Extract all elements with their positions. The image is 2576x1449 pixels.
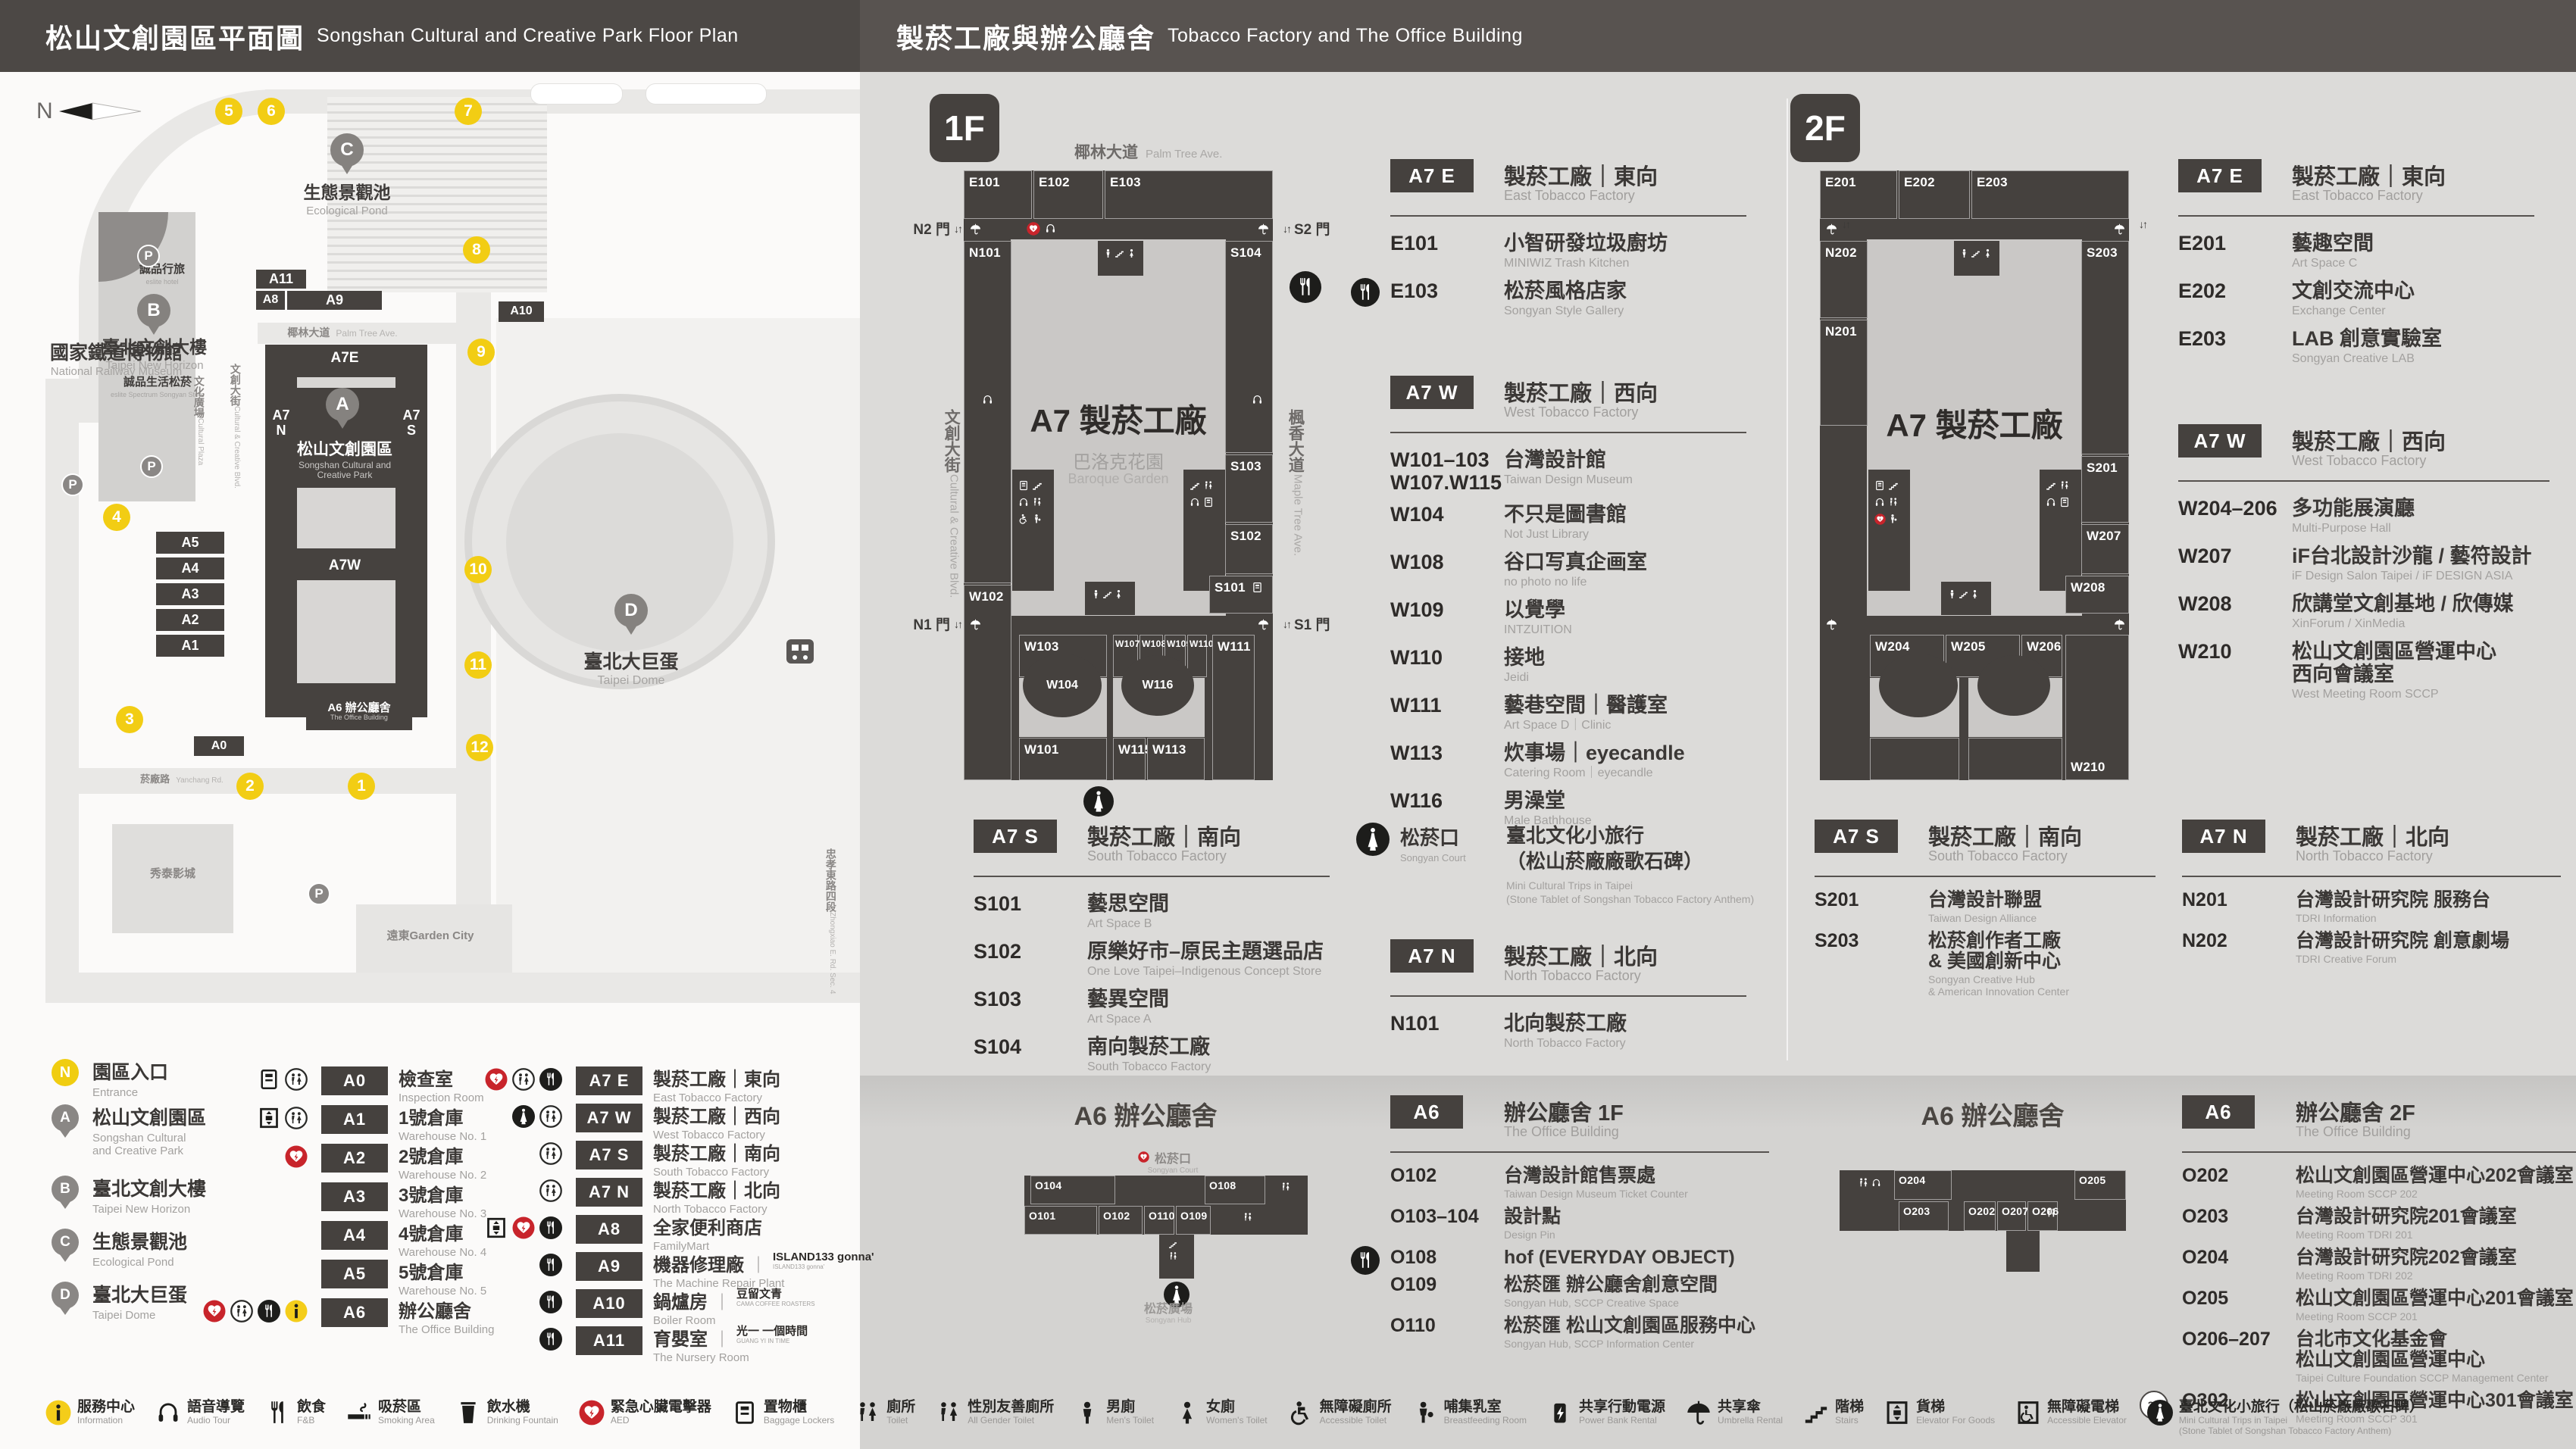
info-icon — [45, 1400, 71, 1426]
gelev-icon — [485, 1216, 508, 1239]
section-badge-A7E: A7 E — [1390, 159, 1474, 192]
facility-text: 置物櫃Baggage Lockers — [764, 1400, 834, 1426]
section-entries: S201台灣設計聯盟Taiwan Design AllianceS203松菸創作… — [1815, 883, 2156, 998]
facility-text: 服務中心Information — [77, 1400, 135, 1426]
gelev-icon — [1884, 1400, 1910, 1429]
facility-text: 廁所Toilet — [886, 1400, 915, 1426]
map-callout — [530, 83, 623, 105]
audio-icon — [1045, 223, 1056, 234]
room-name: 南向製菸工廠South Tobacco Factory — [1087, 1035, 1211, 1074]
umbrella-icon — [1686, 1400, 1712, 1429]
plan-oval-room — [1879, 654, 1958, 717]
floor-plan-poster: 松山文創園區平面圖 Songshan Cultural and Creative… — [0, 0, 2576, 1449]
mens-icon — [1091, 589, 1101, 599]
legend-point-text: 臺北大巨蛋Taipei Dome — [92, 1280, 187, 1322]
map-block-A1: A1 — [156, 635, 224, 657]
compass-north: N — [36, 98, 142, 124]
room-code: W210 — [2178, 640, 2292, 701]
bus-stop-icon — [786, 639, 814, 664]
plan-title-text: A7 製菸工廠 — [1886, 400, 2062, 446]
directory-entry-O110: O110松菸匯 松山文創園區服務中心Songyan Hub, SCCP Info… — [1390, 1316, 1769, 1350]
directory-entry-W204–206: W204–206多功能展演廳Multi-Purpose Hall — [2178, 497, 2549, 536]
plan-room-E202: E202 — [1899, 170, 1970, 219]
section-badge-A7W: A7 W — [2178, 424, 2262, 457]
facility-item-allgender: 性別友善廁所All Gender Toilet — [936, 1400, 1054, 1429]
plan-room-S203: S203 — [2081, 241, 2129, 454]
section-title-zh: 製菸工廠｜東向 — [1504, 159, 1658, 191]
a6-room-O108: O108 — [1205, 1176, 1265, 1204]
room-code: N202 — [2182, 931, 2296, 965]
right-header-en: Tobacco Factory and The Office Building — [1168, 25, 1523, 47]
map-gate-6: 6 — [258, 98, 285, 125]
legend-text-A8: 全家便利商店FamilyMart — [653, 1213, 762, 1253]
room-code: O102 — [1390, 1166, 1504, 1200]
aed-icon — [1027, 222, 1040, 236]
room-name: 台灣設計研究院 服務台TDRI Information — [2296, 890, 2490, 924]
map-gate-7: 7 — [455, 98, 482, 125]
plan-oval-room — [1977, 655, 2050, 716]
facility-item-wheelchair: 無障礙廁所Accessible Toilet — [1288, 1400, 1392, 1429]
section-entries: E101小智研發垃圾廚坊MINIWIZ Trash KitchenE103松菸風… — [1390, 223, 1746, 318]
facility-item-powerbank: 共享行動電源Power Bank Rental — [1547, 1400, 1665, 1429]
room-name: iF台北設計沙龍 / 藝符設計iF Design Salon Taipei / … — [2292, 545, 2532, 583]
gelev-icon — [258, 1107, 280, 1129]
directory-entry-W207: W207iF台北設計沙龍 / 藝符設計iF Design Salon Taipe… — [2178, 545, 2549, 583]
facility-item-aed: 緊急心臟電擊器AED — [579, 1400, 711, 1426]
room-name: 藝趣空間Art Space C — [2292, 232, 2374, 270]
directory-entry-N201: N201台灣設計研究院 服務台TDRI Information — [2182, 890, 2561, 924]
section-entries: E201藝趣空間Art Space CE202文創交流中心Exchange Ce… — [2178, 223, 2534, 366]
door-label-S1 門: ↓↑S1 門 — [1279, 614, 1352, 634]
songyan-court-icon — [1083, 786, 1114, 817]
legend-badge-A10: A10 — [576, 1289, 642, 1318]
plan-room-W208: W208 — [2065, 576, 2129, 614]
room-name: 多功能展演廳Multi-Purpose Hall — [2292, 497, 2415, 536]
map-label: 臺北大巨蛋Taipei Dome — [583, 651, 678, 688]
plan-room-N201: N201 — [1820, 320, 1868, 426]
breastfeeding-icon — [1032, 514, 1043, 524]
map-label: 生態景觀池Ecological Pond — [304, 183, 391, 217]
directory-entry-O108: O108hof (EVERYDAY OBJECT) — [1390, 1248, 1769, 1268]
plan-room-W113: W113 — [1147, 738, 1205, 780]
room-code: S104 — [974, 1035, 1087, 1074]
section-title-zh: 製菸工廠｜北向 — [2296, 820, 2449, 851]
section-entries: N101北向製菸工廠North Tobacco Factory — [1390, 1003, 1746, 1051]
a6-room-O203: O203 — [1899, 1201, 1949, 1231]
plan-title-text: 巴洛克花園 — [1073, 447, 1164, 473]
section-badge-A6: A6 — [2182, 1095, 2255, 1129]
room-code: S203 — [1815, 931, 1928, 998]
legend-text-A5: 5號倉庫Warehouse No. 5 — [399, 1257, 486, 1298]
room-code: O202 — [2182, 1166, 2296, 1200]
room-code: W110 — [1390, 646, 1504, 685]
directory-entry-O205: O205松山文創園區營運中心201會議室Meeting Room SCCP 20… — [2182, 1288, 2576, 1323]
dining-icon — [1351, 278, 1380, 307]
room-name: 文創交流中心Exchange Center — [2292, 279, 2415, 318]
facility-item-locker: 置物櫃Baggage Lockers — [732, 1400, 834, 1429]
umbrella-icon — [1258, 223, 1269, 235]
legend-badge-A1: A1 — [321, 1105, 388, 1134]
street-label: 椰林大道Palm Tree Ave. — [1074, 144, 1222, 162]
room-name: 台灣設計館Taiwan Design Museum — [1504, 448, 1633, 494]
section-title-zh: 製菸工廠｜西向 — [1504, 376, 1658, 408]
legend-badge-A6: A6 — [321, 1298, 388, 1327]
door-label-N2 門: N2 門↓↑ — [893, 218, 965, 239]
plan-room-E102: E102 — [1033, 170, 1103, 219]
directory-entry-S101: S101藝思空間Art Space B — [974, 892, 1330, 931]
room-name: 北向製菸工廠North Tobacco Factory — [1504, 1012, 1627, 1051]
legend-text-A4: 4號倉庫Warehouse No. 4 — [399, 1219, 486, 1259]
directory-entry-S104: S104南向製菸工廠South Tobacco Factory — [974, 1035, 1330, 1074]
map-label: A7E — [331, 350, 359, 366]
room-name: 藝巷空間｜醫護室Art Space D｜Clinic — [1504, 694, 1668, 732]
court-icon — [512, 1105, 535, 1128]
map-block-A4: A4 — [156, 557, 224, 579]
room-code: S101 — [974, 892, 1087, 931]
audio-icon — [1252, 394, 1263, 405]
a6-room-O110: O110 — [1144, 1206, 1174, 1235]
room-code: W104 — [1390, 503, 1504, 542]
legend-point-C: C — [52, 1229, 79, 1265]
room-name: 藝思空間Art Space B — [1087, 892, 1169, 931]
mens-icon — [1947, 589, 1957, 599]
left-header-en: Songshan Cultural and Creative Park Floo… — [317, 25, 739, 47]
toilets_c-icon — [230, 1300, 253, 1323]
room-code: W108 — [1390, 551, 1504, 589]
directory-entry-O206–207: O206–207台北市文化基金會松山文創園區營運中心Taipei Culture… — [2182, 1329, 2576, 1384]
legend-point-N: N — [52, 1059, 79, 1086]
room-code: N101 — [1390, 1012, 1504, 1051]
room-name: 松山文創園區營運中心201會議室Meeting Room SCCP 201 — [2296, 1288, 2574, 1323]
section-title-en: South Tobacco Factory — [1087, 848, 1227, 864]
locker-icon — [2059, 497, 2070, 507]
facility-text: 語音導覽Audio Tour — [187, 1400, 245, 1426]
mens-icon — [1074, 1400, 1100, 1429]
stairs-icon — [1114, 248, 1124, 258]
compass-letter: N — [36, 98, 53, 124]
floor-divider — [1787, 98, 1788, 1060]
facility-text: 吸菸區Smoking Area — [378, 1400, 435, 1426]
umbrella-icon — [1826, 223, 1837, 235]
legend-point-text: 松山文創園區Songshan Cultural and Creative Par… — [92, 1103, 206, 1157]
directory-entry-O202: O202松山文創園區營運中心202會議室Meeting Room SCCP 20… — [2182, 1166, 2576, 1200]
mens-icon — [1103, 248, 1113, 258]
map-label: 忠孝東路四段Zhongxiao E. Rd. Sec. 4 — [824, 848, 836, 994]
section-divider — [974, 876, 1330, 877]
pin-marker: B — [52, 1176, 79, 1212]
parking-icon: P — [140, 455, 163, 478]
dining_c-icon — [539, 1068, 562, 1091]
audio-icon — [982, 394, 993, 405]
map-label: 菸廠路Yanchang Rd. — [140, 773, 224, 786]
legend-text-A2: 2號倉庫Warehouse No. 2 — [399, 1141, 486, 1182]
door-label-N1 門: N1 門↓↑ — [893, 614, 965, 634]
section-title-en: The Office Building — [1504, 1124, 1619, 1140]
plan-room-W102: W102 — [964, 585, 1011, 780]
parking-icon: P — [61, 473, 84, 496]
facility-item-umbrella: 共享傘Umbrella Rental — [1686, 1400, 1783, 1429]
legend-text-A11: 育嬰室｜光一 一個時間GUANG YI IN TIMEThe Nursery R… — [653, 1324, 808, 1364]
parking-icon: P — [137, 245, 160, 267]
plan-room-S102: S102 — [1225, 524, 1273, 574]
directory-entry-O203: O203台灣設計研究院201會議室Meeting Room TDRI 201 — [2182, 1207, 2576, 1241]
section-title-en: West Tobacco Factory — [2292, 453, 2426, 469]
map-block-A11: A11 — [256, 270, 306, 289]
directory-entry-N101: N101北向製菸工廠North Tobacco Factory — [1390, 1012, 1746, 1051]
room-name: 台灣設計研究院201會議室Meeting Room TDRI 201 — [2296, 1207, 2517, 1241]
breastfeeding-icon — [1412, 1400, 1438, 1429]
directory-entry-W208: W208欣講堂文創基地 / 欣傳媒XinForum / XinMedia — [2178, 592, 2549, 631]
facility-item-info: 服務中心Information — [45, 1400, 135, 1426]
dining_c-icon — [539, 1216, 562, 1239]
map-gate-11: 11 — [464, 651, 492, 679]
facility-text: 飲食F&B — [297, 1400, 326, 1426]
breastfeeding-icon — [1888, 514, 1899, 524]
section-title-en: West Tobacco Factory — [1504, 404, 1638, 420]
directory-entry-N202: N202台灣設計研究院 創意劇場TDRI Creative Forum — [2182, 931, 2561, 965]
pin-marker: D — [52, 1282, 79, 1318]
room-code: O206–207 — [2182, 1329, 2296, 1384]
section-badge-A7N: A7 N — [1390, 939, 1474, 973]
facility-item-breastfeeding: 哺集乳室Breastfeeding Room — [1412, 1400, 1527, 1429]
toilets-icon — [1168, 1251, 1178, 1261]
aed-icon — [285, 1145, 308, 1168]
street-label: 文創大街Cultural & Creative Blvd. — [939, 409, 960, 598]
room-code: O109 — [1390, 1275, 1504, 1309]
court-icon — [2147, 1400, 2173, 1426]
section-badge-A7N: A7 N — [2182, 820, 2265, 853]
legend-point-text: 臺北文創大樓Taipei New Horizon — [92, 1174, 206, 1216]
facility-item-court: 臺北文化小旅行（松山菸廠廠歌石碑）Mini Cultural Trips in … — [2147, 1400, 2424, 1436]
room-code: O103–104 — [1390, 1207, 1504, 1241]
section-entries: W204–206多功能展演廳Multi-Purpose HallW207iF台北… — [2178, 488, 2549, 701]
section-title-zh: 製菸工廠｜北向 — [1504, 939, 1658, 971]
a6-room-O109: O109 — [1176, 1206, 1211, 1235]
map-gate-5: 5 — [215, 98, 242, 125]
legend-badge-A0: A0 — [321, 1066, 388, 1095]
map-block-A3: A3 — [156, 583, 224, 605]
room-name: 松菸風格店家Songyan Style Gallery — [1504, 279, 1627, 318]
a6-plan-title: A6 辦公廳舍 — [1921, 1095, 2065, 1132]
toilets_c-icon — [285, 1068, 308, 1091]
entrance-marker: N — [52, 1059, 79, 1086]
songyan-hub-label: 松菸廣場Songyan Hub — [1144, 1298, 1193, 1325]
room-code: O203 — [2182, 1207, 2296, 1241]
facility-text: 共享行動電源Power Bank Rental — [1579, 1400, 1665, 1426]
section-title-zh: 辦公廳舍 1F — [1504, 1095, 1624, 1127]
plan-room-W110: W110 — [1187, 635, 1207, 677]
toilets-icon — [2046, 1207, 2057, 1219]
directory-entry-S103: S103藝異空間Art Space A — [974, 988, 1330, 1026]
room-code: O204 — [2182, 1248, 2296, 1282]
room-code: W113 — [1390, 742, 1504, 780]
legend-point-text: 園區入口Entrance — [92, 1057, 168, 1099]
parking-icon: P — [308, 882, 330, 905]
toilets-icon — [1888, 497, 1899, 507]
facility-text: 男廁Men's Toilet — [1106, 1400, 1154, 1426]
legend-badge-A7N: A7 N — [576, 1178, 642, 1207]
a6-room-O202: O202 — [1964, 1201, 1996, 1231]
street-label: 楓香大道Maple Tree Ave. — [1283, 409, 1304, 556]
stairs-icon — [1190, 480, 1200, 491]
room-code: E202 — [2178, 279, 2292, 318]
legend-point-A: A — [52, 1104, 79, 1141]
audio-icon — [1190, 497, 1200, 507]
smoking-icon — [346, 1400, 372, 1429]
section-divider — [1390, 432, 1746, 433]
plan-room-S104: S104 — [1225, 241, 1273, 453]
room-name: 松山文創園區營運中心202會議室Meeting Room SCCP 202 — [2296, 1166, 2574, 1200]
plan-corridor — [1820, 220, 2129, 239]
section-entries: W101–103W107.W115台灣設計館Taiwan Design Muse… — [1390, 439, 1746, 828]
pin-marker: C — [52, 1229, 79, 1265]
section-badge-A7E: A7 E — [2178, 159, 2262, 192]
room-code: W208 — [2178, 592, 2292, 631]
map-gate-10: 10 — [464, 556, 492, 583]
map-label: 秀泰影城 — [150, 868, 195, 881]
plan-room-W210: W210 — [2065, 635, 2129, 780]
section-entries: N201台灣設計研究院 服務台TDRI InformationN202台灣設計研… — [2182, 883, 2561, 965]
legend-badge-A11: A11 — [576, 1326, 642, 1355]
facility-item-dining: 飲食F&B — [265, 1400, 326, 1429]
legend-badge-A7S: A7 S — [576, 1141, 642, 1170]
audio-icon — [1874, 497, 1885, 507]
plan-title-text: A7 製菸工廠 — [1030, 395, 1206, 442]
map-label: 椰林大道Palm Tree Ave. — [287, 326, 397, 340]
water-icon — [455, 1400, 481, 1429]
stairs-icon — [1971, 248, 1980, 258]
a6-room-O205: O205 — [2074, 1170, 2126, 1200]
map-label: 松山文創園區Songshan Cultural and Creative Par… — [297, 441, 392, 481]
directory-entry-E101: E101小智研發垃圾廚坊MINIWIZ Trash Kitchen — [1390, 232, 1746, 270]
room-code: N201 — [2182, 890, 2296, 924]
room-code: E101 — [1390, 232, 1504, 270]
section-divider — [2182, 1151, 2576, 1153]
section-title-zh: 製菸工廠｜東向 — [2292, 159, 2446, 191]
section-divider — [1390, 995, 1746, 997]
dining-icon — [1351, 1246, 1380, 1275]
directory-entry-E203: E203LAB 創意實驗室Songyan Creative LAB — [2178, 327, 2534, 366]
a6-room-O104: O104 — [1030, 1176, 1115, 1204]
map-block-A5: A5 — [156, 532, 224, 554]
audio-icon — [155, 1400, 181, 1429]
umbrella-icon — [970, 619, 981, 630]
facility-legend: 服務中心Information語音導覽Audio Tour飲食F&B吸菸區Smo… — [45, 1400, 2561, 1436]
locker-icon — [1203, 497, 1214, 507]
section-title-en: North Tobacco Factory — [1504, 968, 1641, 984]
room-name: 藝異空間Art Space A — [1087, 988, 1169, 1026]
left-header-zh: 松山文創園區平面圖 — [45, 17, 305, 56]
facility-item-smoking: 吸菸區Smoking Area — [346, 1400, 435, 1429]
section-title-zh: 製菸工廠｜西向 — [2292, 424, 2446, 456]
section-title-en: East Tobacco Factory — [2292, 188, 2423, 204]
a6-plan-title: A6 辦公廳舍 — [1074, 1095, 1218, 1132]
room-name: 台灣設計館售票處Taiwan Design Museum Ticket Coun… — [1504, 1166, 1688, 1200]
pin-marker: A — [52, 1104, 79, 1141]
facility-item-gelev: 貨梯Elevator For Goods — [1884, 1400, 1995, 1429]
powerbank-icon — [1547, 1400, 1573, 1429]
section-divider — [2182, 876, 2561, 877]
map-pin-tail — [146, 323, 161, 335]
stairs-icon — [1888, 480, 1899, 491]
plan-corridor — [1820, 616, 2129, 633]
legend-point-D: D — [52, 1282, 79, 1318]
section-entries: O202松山文創園區營運中心202會議室Meeting Room SCCP 20… — [2182, 1159, 2576, 1425]
facility-text: 飲水機Drinking Fountain — [487, 1400, 558, 1426]
room-name: 谷口写真企画室no photo no life — [1504, 551, 1647, 589]
room-name: LAB 創意實驗室Songyan Creative LAB — [2292, 327, 2442, 366]
songyan-court-label: 松菸口Songyan Court — [1148, 1148, 1199, 1175]
dining-icon — [1290, 271, 1321, 303]
map-gate-4: 4 — [103, 504, 130, 531]
info-icon — [285, 1300, 308, 1323]
locker-icon — [732, 1400, 758, 1429]
legend-badge-A5: A5 — [321, 1260, 388, 1288]
map-gate-3: 3 — [116, 706, 143, 733]
map-label: A7 N — [272, 408, 289, 438]
room-name: 欣講堂文創基地 / 欣傳媒XinForum / XinMedia — [2292, 592, 2514, 631]
a6-room-O101: O101 — [1024, 1206, 1097, 1235]
directory-entry-W111: W111藝巷空間｜醫護室Art Space D｜Clinic — [1390, 694, 1746, 732]
facility-text: 共享傘Umbrella Rental — [1718, 1400, 1783, 1426]
facility-item-toilets: 廁所Toilet — [855, 1400, 915, 1429]
section-badge-A7S: A7 S — [974, 820, 1057, 853]
womens-icon — [1970, 589, 1980, 599]
toilets-icon — [1203, 480, 1214, 491]
facility-text: 無障礙廁所Accessible Toilet — [1320, 1400, 1392, 1426]
section-divider — [1815, 876, 2156, 877]
toilets-icon — [2059, 480, 2070, 491]
plan-room-W115: W115 — [1113, 738, 1146, 780]
room-name: 台灣設計研究院 創意劇場TDRI Creative Forum — [2296, 931, 2509, 965]
map-block-A9: A9 — [287, 291, 382, 310]
toilets-icon — [1243, 1212, 1253, 1223]
toilets-icon — [1280, 1182, 1291, 1192]
stairs-icon — [1168, 1239, 1177, 1248]
dining_c-icon — [539, 1254, 562, 1276]
plan-room-E101: E101 — [964, 170, 1032, 219]
stairs-icon — [2046, 480, 2056, 491]
legend-text-A10: 鍋爐房｜豆留文青CAMA COFFEE ROASTERSBoiler Room — [653, 1287, 815, 1327]
right-panel-header: 製菸工廠與辦公廳舍 Tobacco Factory and The Office… — [860, 0, 2576, 72]
map-label: A7W — [329, 557, 361, 573]
stairs-icon — [1803, 1400, 1829, 1429]
aed-icon — [512, 1216, 535, 1239]
legend-badge-A4: A4 — [321, 1221, 388, 1250]
road-left — [45, 379, 79, 996]
umbrella-icon — [1258, 619, 1269, 630]
facility-text: 性別友善廁所All Gender Toilet — [968, 1400, 1054, 1426]
plan-title-text: Baroque Garden — [1068, 471, 1168, 487]
aed-icon — [485, 1068, 508, 1091]
womens-icon — [1127, 248, 1136, 258]
left-panel-header: 松山文創園區平面圖 Songshan Cultural and Creative… — [0, 0, 860, 72]
plan-room-S103: S103 — [1225, 454, 1273, 523]
directory-entry-W110: W110接地Jeidi — [1390, 646, 1746, 685]
map-label: 遠東Garden City — [386, 930, 474, 943]
room-code: O205 — [2182, 1288, 2296, 1323]
plan-room-cell — [1968, 738, 2062, 780]
toilets_c-icon — [539, 1105, 562, 1128]
aelev-icon — [2015, 1400, 2041, 1429]
directory-entry-W210: W210松山文創園區營運中心西向會議室West Meeting Room SCC… — [2178, 640, 2549, 701]
legend-text-A3: 3號倉庫Warehouse No. 3 — [399, 1180, 486, 1220]
directory-entry-O204: O204台灣設計研究院202會議室Meeting Room TDRI 202 — [2182, 1248, 2576, 1282]
room-code: W109 — [1390, 598, 1504, 637]
room-name: 炊事場｜eyecandleCatering Room｜eyecandle — [1504, 742, 1685, 780]
plan-room-cell — [1870, 738, 1959, 780]
map-gate-2: 2 — [236, 773, 264, 800]
